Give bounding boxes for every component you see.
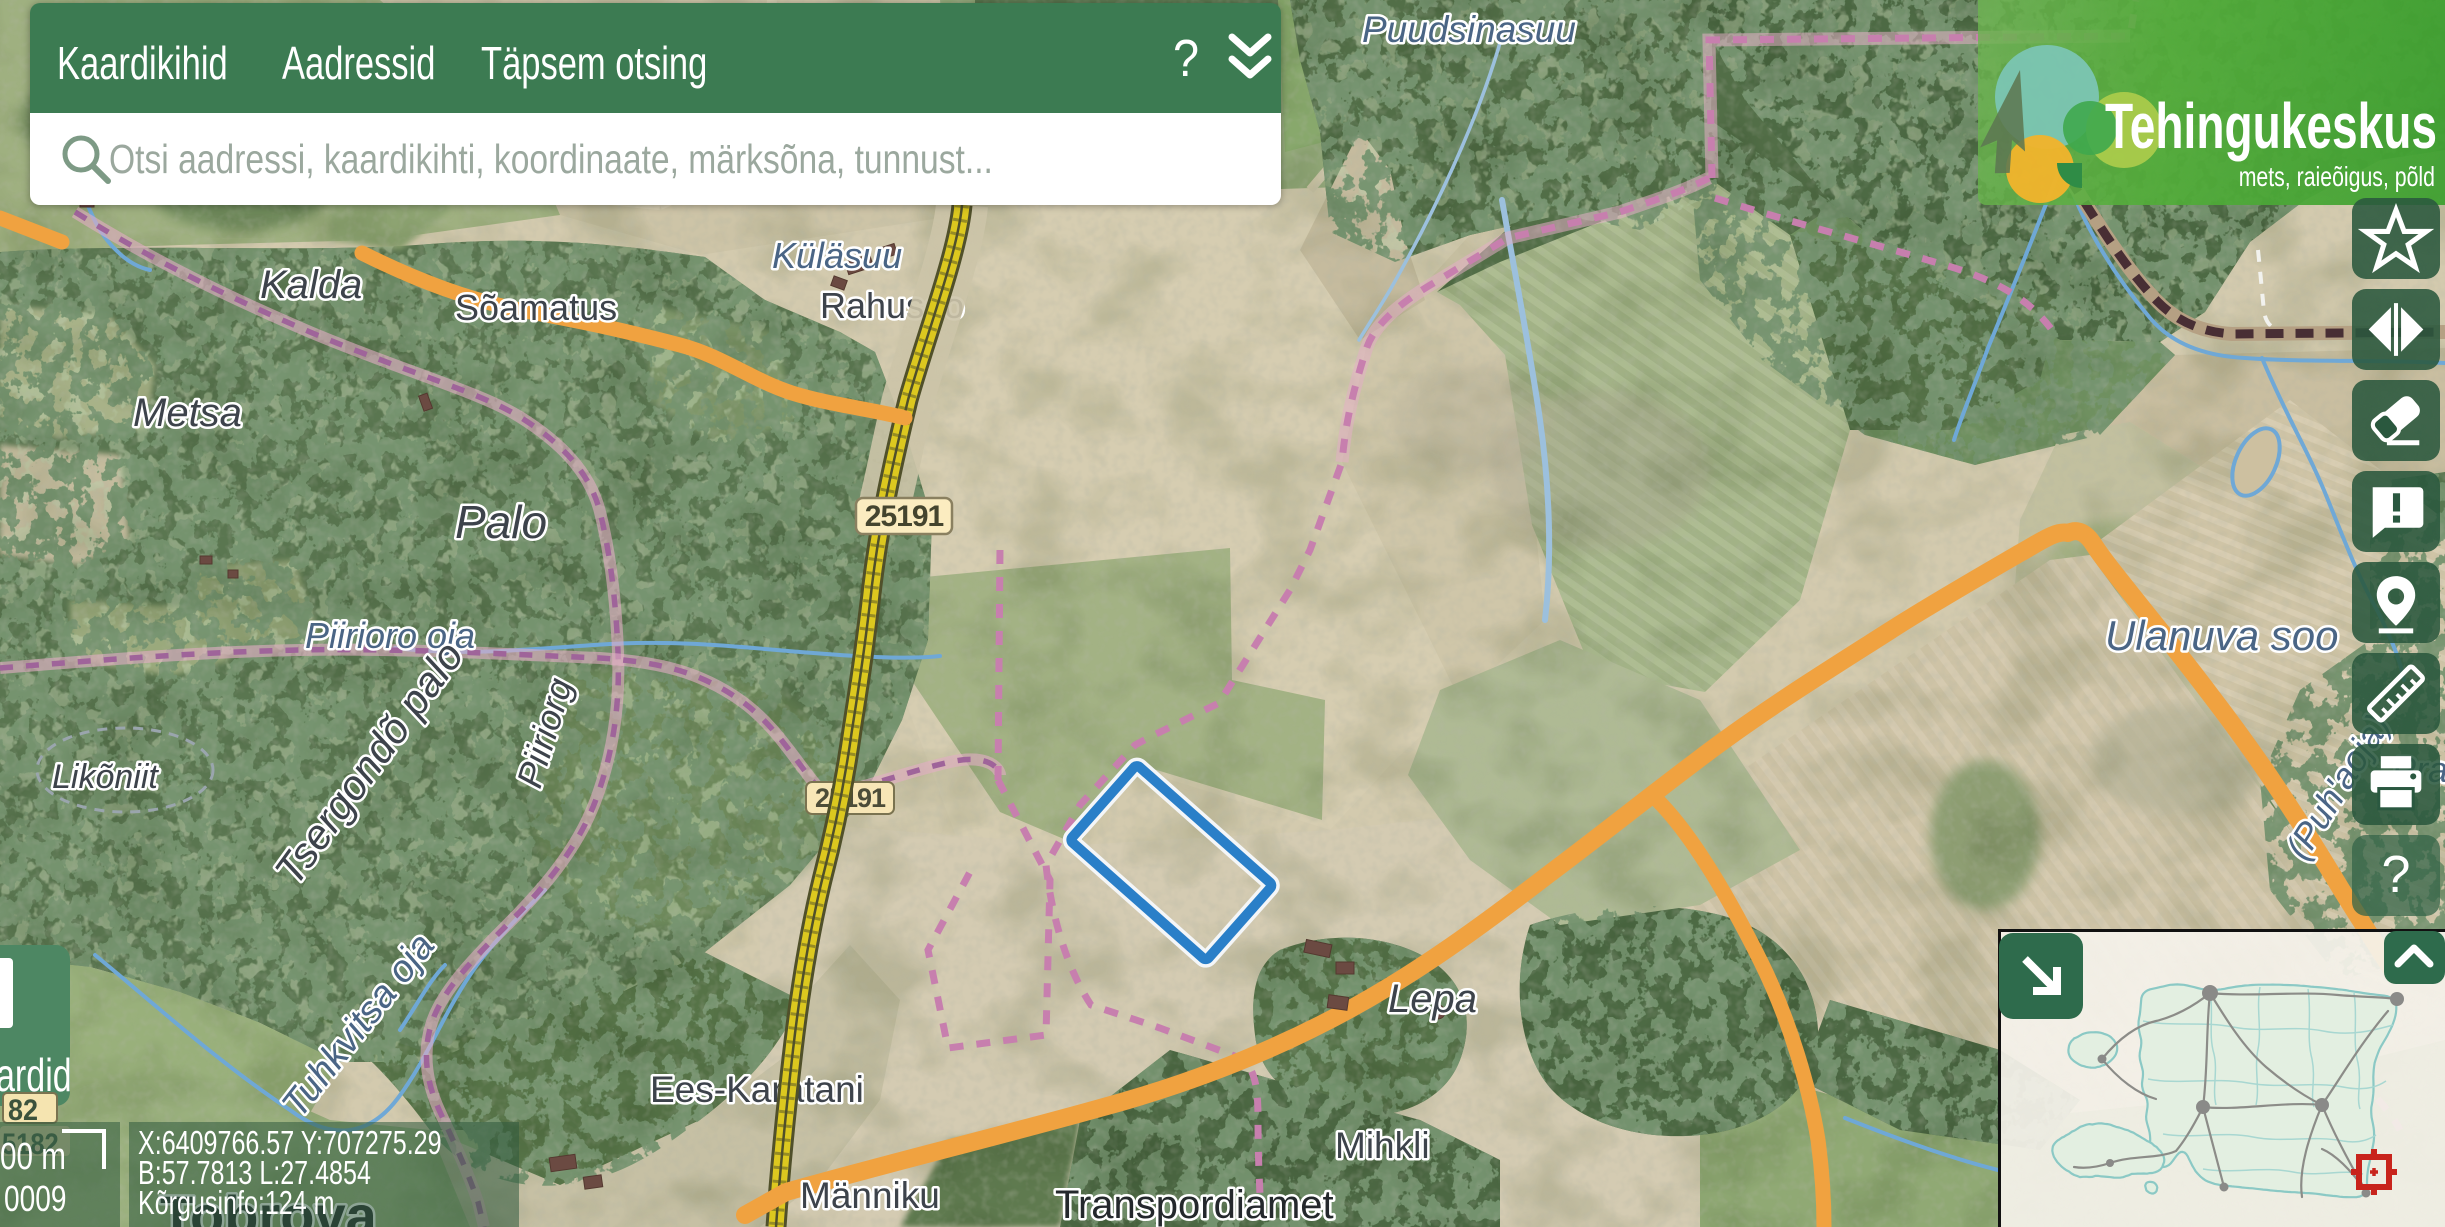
svg-text:Transpordiamet: Transpordiamet bbox=[1055, 1183, 1334, 1227]
svg-text:Puudsinasuu: Puudsinasuu bbox=[1362, 9, 1576, 50]
svg-text:Ulanuva soo: Ulanuva soo bbox=[2105, 612, 2338, 659]
svg-text:Ees-Karatani: Ees-Karatani bbox=[650, 1069, 864, 1110]
svg-text:25191: 25191 bbox=[865, 500, 944, 533]
svg-text:Kalda: Kalda bbox=[260, 263, 362, 307]
svg-text:Mihkli: Mihkli bbox=[1335, 1125, 1430, 1166]
svg-text:Likõniit: Likõniit bbox=[52, 758, 159, 796]
svg-text:Metsa: Metsa bbox=[133, 391, 242, 435]
svg-text:Männiku: Männiku bbox=[800, 1175, 940, 1216]
svg-text:Küläsuu: Küläsuu bbox=[772, 235, 902, 276]
svg-text:Sõamatus: Sõamatus bbox=[455, 287, 617, 328]
svg-text:mets, raieõigus, põld: mets, raieõigus, põld bbox=[2239, 161, 2435, 193]
svg-text:Lepa: Lepa bbox=[1388, 977, 1477, 1021]
svg-text:Palo: Palo bbox=[455, 496, 547, 548]
svg-text:Tehingukeskus: Tehingukeskus bbox=[2105, 91, 2437, 162]
